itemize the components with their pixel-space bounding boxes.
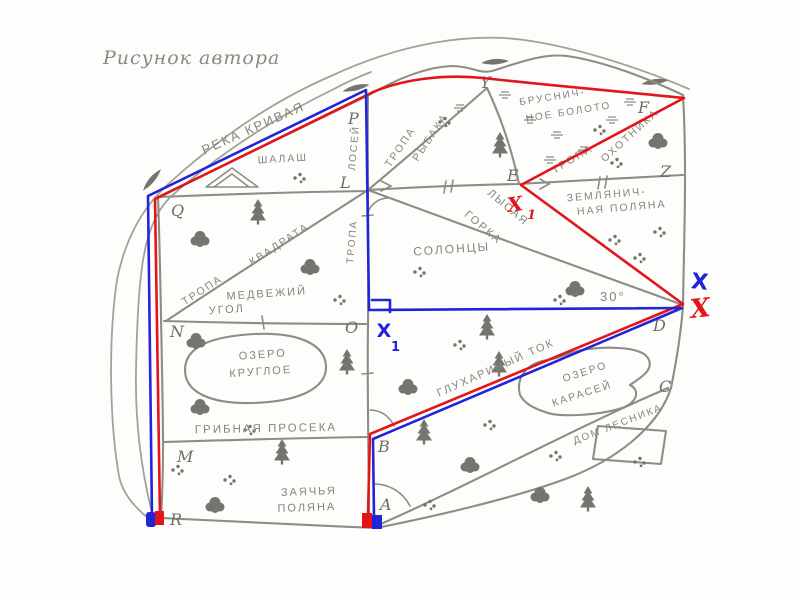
point-label-Z: Z bbox=[659, 162, 672, 181]
point-label-P: P bbox=[347, 109, 359, 128]
finish-flag-red bbox=[362, 513, 372, 528]
red-x1-subscript: 1 bbox=[527, 208, 536, 223]
point-label-Y: Y bbox=[480, 73, 492, 92]
point-label-Q: Q bbox=[171, 201, 184, 220]
point-label-N: N bbox=[169, 322, 185, 341]
start-flag-red bbox=[155, 511, 164, 525]
paper-background bbox=[0, 0, 800, 600]
point-label-C: C bbox=[659, 377, 671, 396]
point-label-L: L bbox=[339, 173, 351, 192]
start-flag-blue bbox=[146, 512, 156, 527]
blue-x-mark: X bbox=[690, 269, 710, 296]
point-label-F: F bbox=[637, 98, 650, 117]
forest-map-figure: Рисунок автора bbox=[0, 0, 800, 600]
point-label-B: B bbox=[377, 437, 390, 456]
label-hare-glade-2: ПОЛЯНА bbox=[277, 501, 336, 515]
point-label-E: E bbox=[506, 166, 519, 185]
blue-x1-mark: X bbox=[377, 320, 392, 342]
point-label-R: R bbox=[169, 510, 182, 529]
point-label-O: O bbox=[345, 318, 358, 337]
label-hare-glade-1: ЗАЯЧЬЯ bbox=[281, 485, 337, 499]
label-proseka: ГРИБНАЯ ПРОСЕКА bbox=[195, 422, 337, 436]
blue-x1-subscript: 1 bbox=[391, 340, 400, 355]
label-bear-corner-2: УГОЛ bbox=[208, 303, 245, 317]
figure-title: Рисунок автора bbox=[102, 47, 280, 69]
angle-30-label: 30° bbox=[600, 289, 626, 304]
slide: Рисунок автора bbox=[0, 0, 800, 600]
point-label-A: A bbox=[378, 495, 392, 514]
point-label-M: M bbox=[176, 447, 194, 466]
finish-flag-blue bbox=[372, 515, 382, 529]
